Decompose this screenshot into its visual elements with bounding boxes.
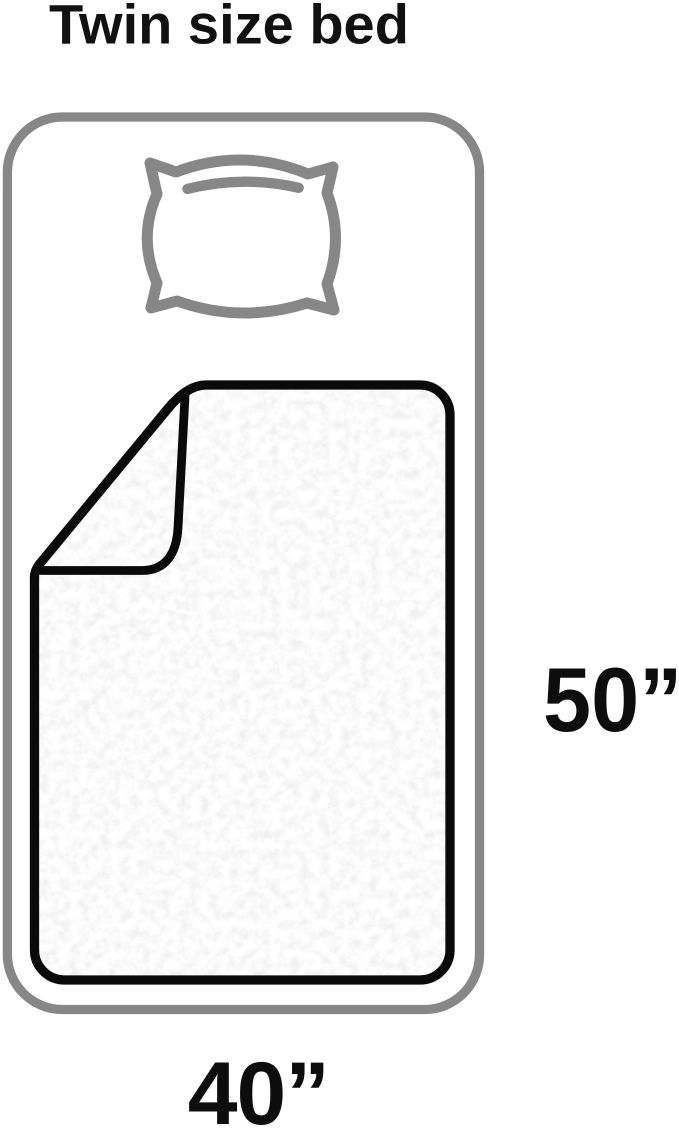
svg-text:50”: 50” [543,649,679,751]
svg-text:40”: 40” [188,1043,329,1129]
svg-text:Twin size bed: Twin size bed [49,0,409,56]
